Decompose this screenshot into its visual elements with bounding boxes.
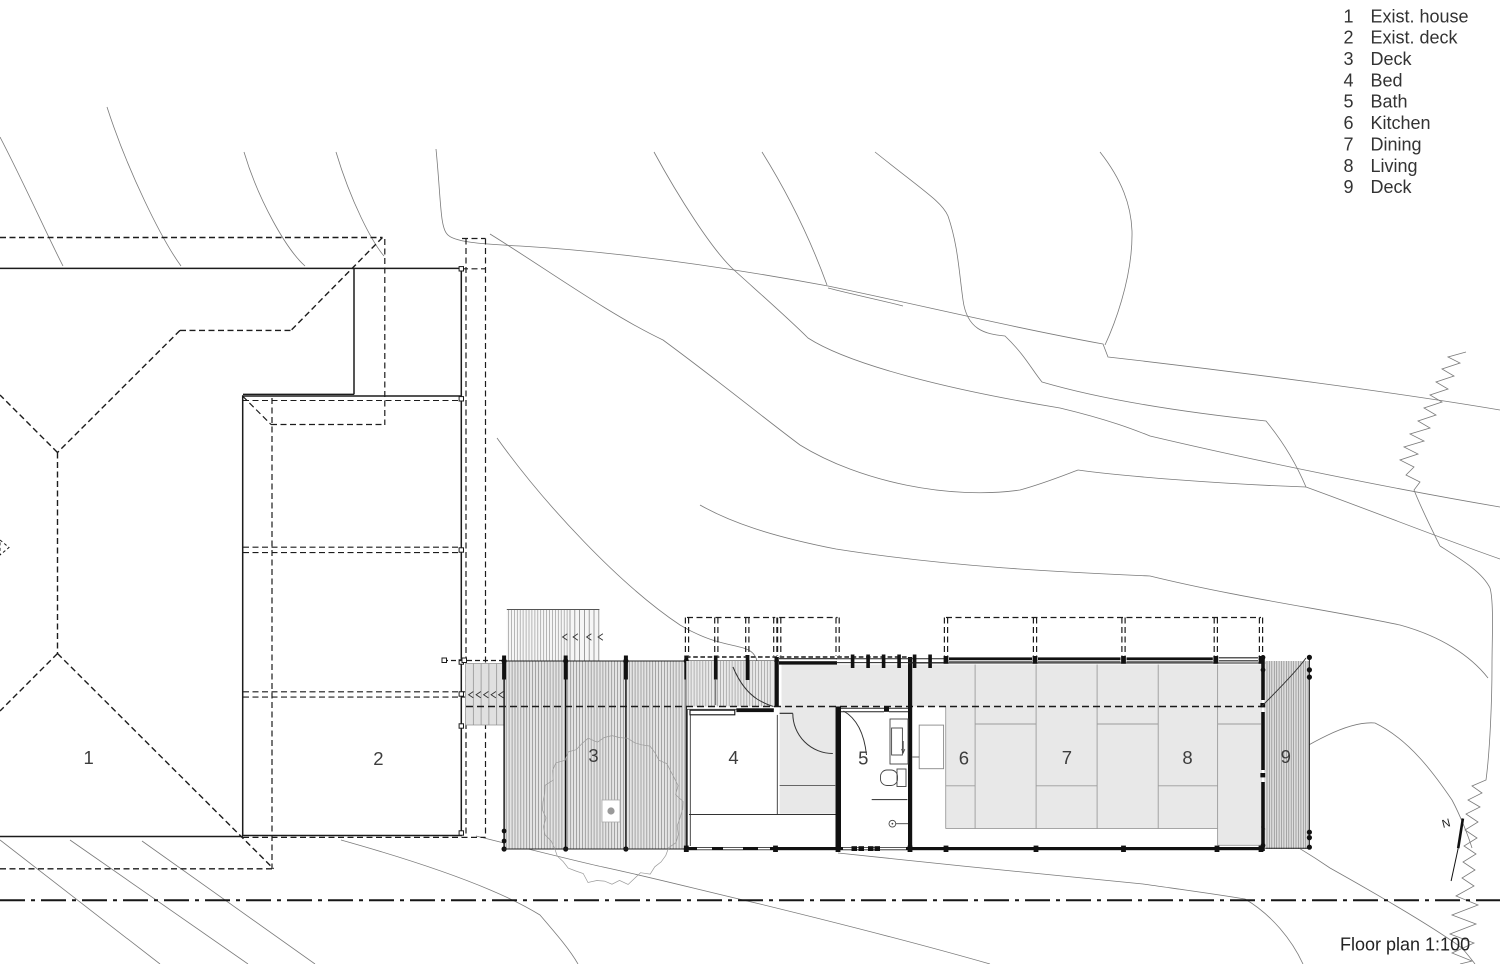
svg-text:3: 3	[1343, 49, 1353, 69]
svg-text:8: 8	[1343, 156, 1353, 176]
svg-text:4: 4	[1343, 70, 1353, 90]
svg-text:6: 6	[1343, 113, 1353, 133]
svg-text:4: 4	[728, 747, 738, 768]
svg-text:Exist. house: Exist. house	[1371, 6, 1469, 26]
svg-text:Living: Living	[1371, 156, 1418, 176]
svg-text:7: 7	[1343, 134, 1353, 154]
svg-text:9: 9	[1343, 177, 1353, 197]
svg-text:5: 5	[1343, 92, 1353, 112]
svg-text:Exist. deck: Exist. deck	[1371, 28, 1459, 48]
svg-text:2: 2	[1343, 28, 1353, 48]
svg-text:Kitchen: Kitchen	[1371, 113, 1431, 133]
svg-text:3: 3	[588, 745, 598, 766]
svg-text:Bed: Bed	[1371, 70, 1403, 90]
svg-text:Floor plan 1:100: Floor plan 1:100	[1340, 935, 1470, 955]
svg-text:Dining: Dining	[1371, 134, 1422, 154]
svg-text:5: 5	[858, 747, 868, 768]
svg-text:9: 9	[1281, 746, 1291, 767]
svg-text:6: 6	[959, 748, 969, 769]
svg-text:Deck: Deck	[1371, 49, 1413, 69]
svg-text:Deck: Deck	[1371, 177, 1413, 197]
svg-text:1: 1	[83, 747, 93, 768]
svg-text:Bath: Bath	[1371, 92, 1408, 112]
svg-text:7: 7	[1062, 747, 1072, 768]
svg-text:1: 1	[1343, 6, 1353, 26]
svg-text:8: 8	[1182, 747, 1192, 768]
svg-text:2: 2	[373, 748, 383, 769]
